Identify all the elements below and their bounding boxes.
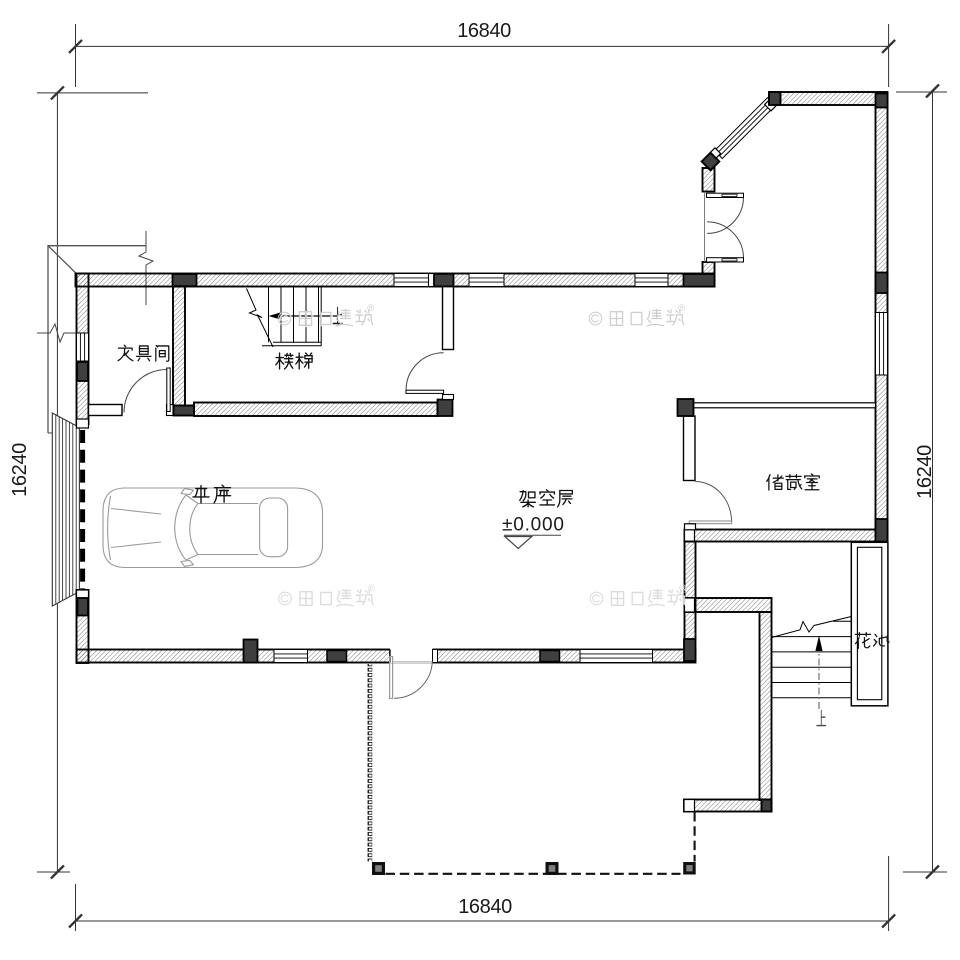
svg-text:±0.000: ±0.000 bbox=[502, 515, 565, 536]
svg-text:16840: 16840 bbox=[458, 896, 512, 918]
svg-text:16240: 16240 bbox=[9, 443, 31, 497]
svg-text:16840: 16840 bbox=[457, 20, 511, 42]
svg-text:16240: 16240 bbox=[914, 445, 936, 499]
